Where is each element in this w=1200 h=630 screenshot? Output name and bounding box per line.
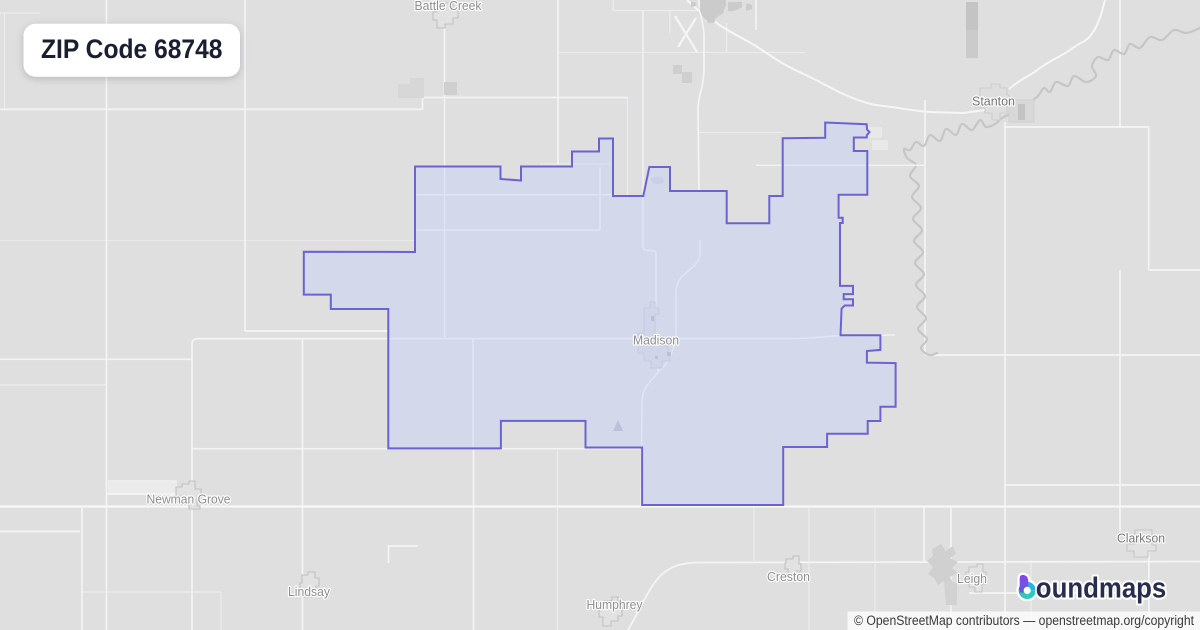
- svg-text:Madison: Madison: [633, 334, 679, 348]
- svg-text:Creston: Creston: [767, 570, 810, 584]
- svg-text:Leigh: Leigh: [957, 572, 987, 586]
- svg-text:ZIP Code 68748: ZIP Code 68748: [41, 34, 223, 64]
- svg-text:© OpenStreetMap contributors —: © OpenStreetMap contributors — openstree…: [854, 613, 1194, 628]
- svg-text:Battle Creek: Battle Creek: [415, 0, 483, 13]
- svg-text:Humphrey: Humphrey: [587, 598, 644, 612]
- svg-text:Stanton: Stanton: [972, 95, 1015, 109]
- svg-text:Clarkson: Clarkson: [1117, 532, 1165, 546]
- svg-text:Newman Grove: Newman Grove: [147, 493, 231, 507]
- svg-text:oundmaps: oundmaps: [1036, 573, 1167, 605]
- svg-text:Lindsay: Lindsay: [288, 585, 331, 599]
